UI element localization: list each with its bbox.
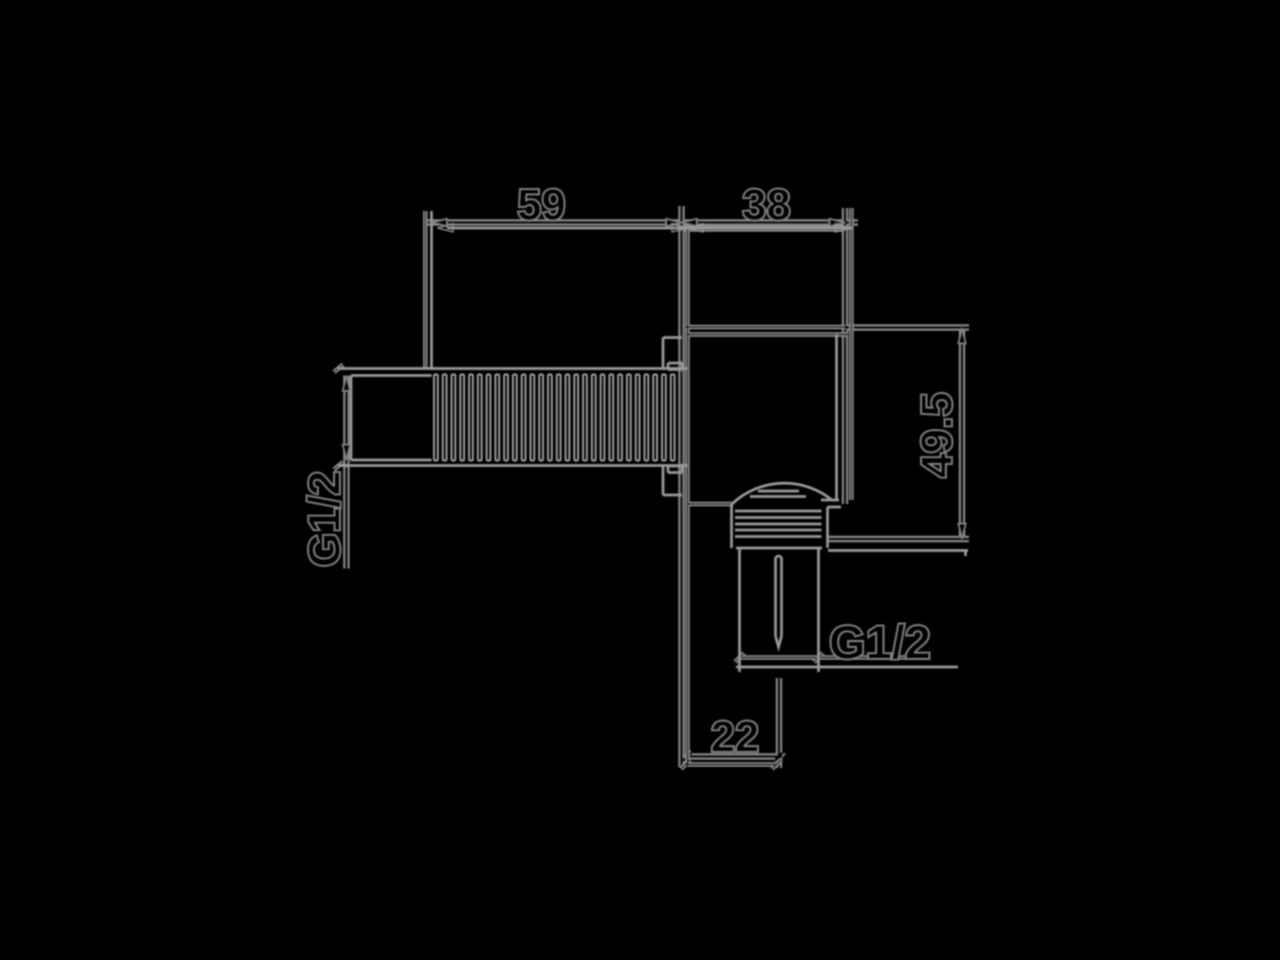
- svg-text:59: 59: [517, 182, 565, 230]
- svg-text:22: 22: [711, 714, 759, 762]
- svg-text:G1/2: G1/2: [301, 471, 350, 567]
- svg-text:49.5: 49.5: [913, 392, 962, 478]
- svg-text:G1/2: G1/2: [829, 616, 931, 669]
- svg-text:38: 38: [742, 182, 790, 230]
